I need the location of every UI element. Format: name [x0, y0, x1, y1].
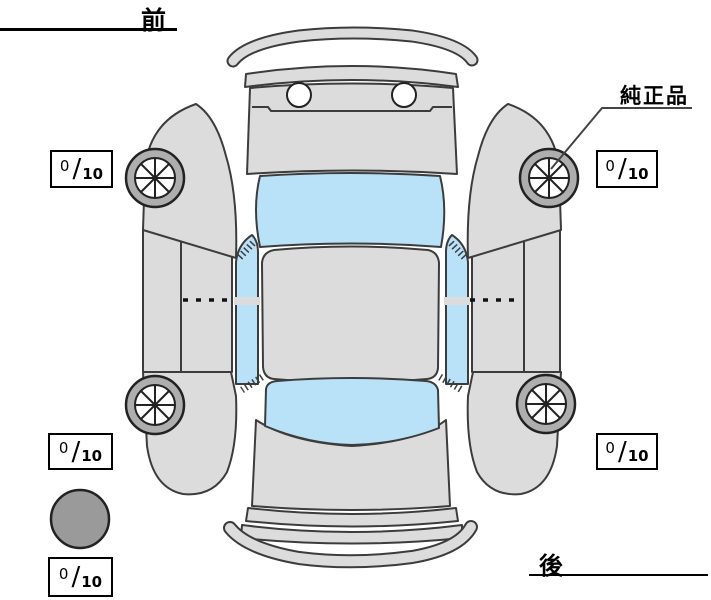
tread-depth-box-spare: 0 / 10 [48, 557, 113, 597]
tread-max: 10 [628, 167, 649, 182]
vehicle-inspection-diagram: 前 後 純正品 0 / 10 0 / 10 0 / 10 0 / 10 0 / … [0, 0, 711, 600]
car-top-view [0, 0, 711, 600]
fraction-separator: / [618, 439, 627, 465]
front-label: 前 [141, 1, 166, 37]
roof [262, 247, 439, 383]
tread-max: 10 [82, 167, 103, 182]
rear-underline [529, 574, 708, 576]
rear-window [265, 378, 439, 445]
tread-max: 10 [628, 449, 649, 464]
windshield [256, 173, 444, 247]
genuine-parts-label: 純正品 [620, 80, 689, 110]
tread-value: 0 [605, 441, 615, 456]
fraction-separator: / [618, 156, 627, 182]
tread-value: 0 [59, 441, 69, 456]
wheel-front-left [126, 149, 184, 207]
wheel-rear-left [126, 376, 184, 434]
wheel-front-right [520, 149, 578, 207]
hood [247, 83, 457, 174]
tread-depth-box-front-left: 0 / 10 [50, 150, 113, 188]
headlight-left [287, 83, 311, 107]
side-window-right [444, 235, 470, 384]
spare-tire-circle [51, 490, 109, 548]
fraction-separator: / [71, 564, 80, 590]
tread-value: 0 [60, 159, 70, 174]
tread-value: 0 [59, 567, 69, 582]
tread-depth-box-rear-left: 0 / 10 [48, 433, 113, 470]
tread-value: 0 [605, 159, 615, 174]
wheel-rear-right [517, 375, 575, 433]
front-underline [0, 28, 177, 31]
side-window-left [234, 235, 260, 384]
front-bumper [233, 33, 472, 61]
tread-max: 10 [81, 575, 102, 590]
tread-max: 10 [81, 449, 102, 464]
fraction-separator: / [72, 156, 81, 182]
tread-depth-box-rear-right: 0 / 10 [596, 433, 658, 470]
tread-depth-box-front-right: 0 / 10 [596, 150, 658, 188]
fraction-separator: / [71, 439, 80, 465]
headlight-right [392, 83, 416, 107]
